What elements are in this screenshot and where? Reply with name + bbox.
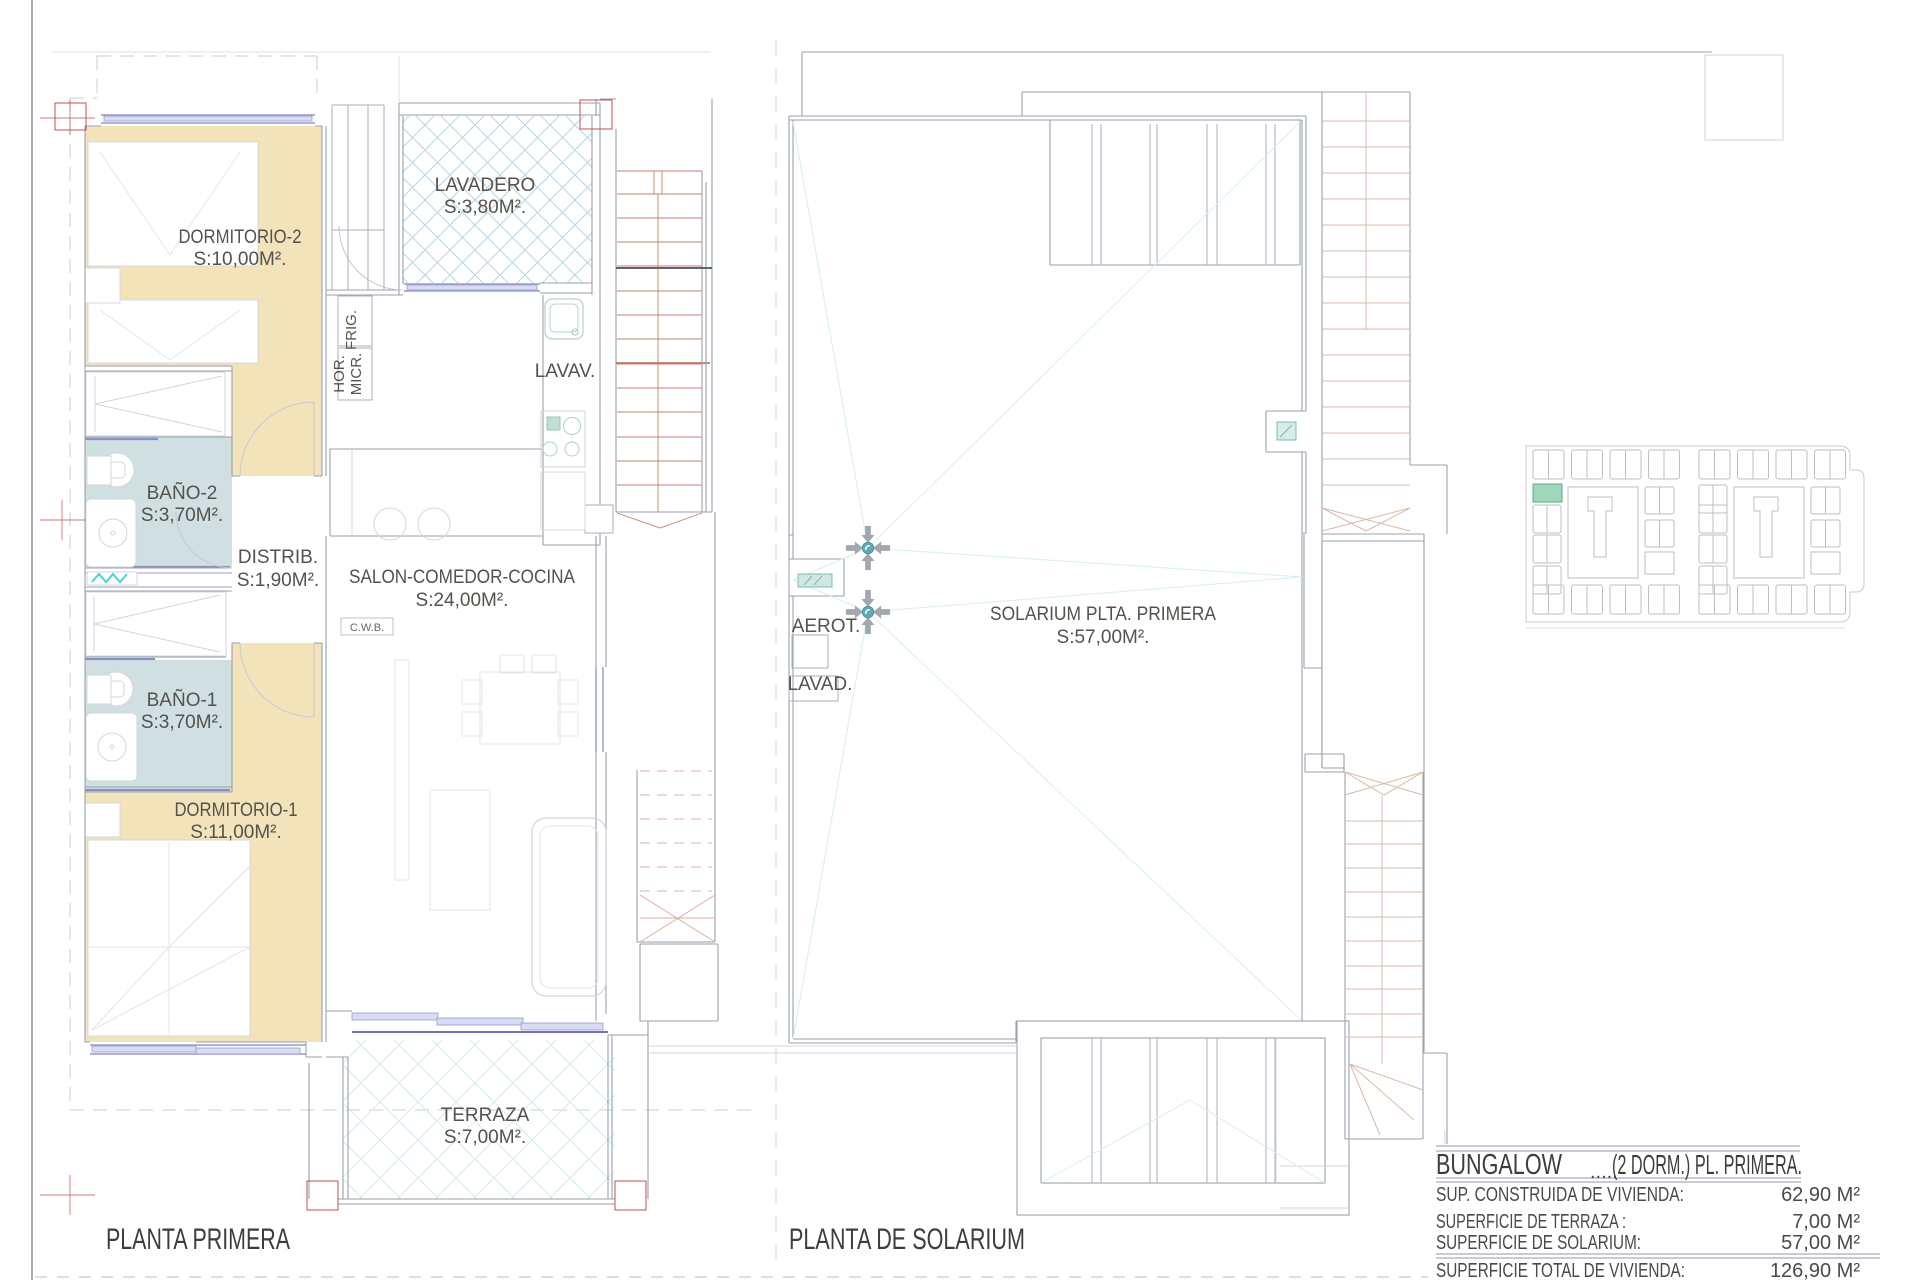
svg-text:PLANTA PRIMERA: PLANTA PRIMERA — [106, 1223, 290, 1256]
svg-text:DORMITORIO-1: DORMITORIO-1 — [175, 800, 298, 821]
svg-text:BAÑO-2: BAÑO-2 — [147, 482, 218, 504]
svg-text:7,00 M²: 7,00 M² — [1792, 1211, 1860, 1233]
svg-text:SUPERFICIE DE SOLARIUM:: SUPERFICIE DE SOLARIUM: — [1436, 1232, 1641, 1254]
svg-text:AEROT.: AEROT. — [792, 616, 861, 637]
svg-text:BUNGALOW: BUNGALOW — [1436, 1149, 1562, 1181]
svg-text:PLANTA DE SOLARIUM: PLANTA DE SOLARIUM — [789, 1223, 1025, 1256]
svg-text:S:10,00M².: S:10,00M². — [194, 249, 287, 270]
svg-text:S:3,70M².: S:3,70M². — [141, 505, 223, 526]
svg-text:SUPERFICIE DE TERRAZA :: SUPERFICIE DE TERRAZA : — [1436, 1211, 1626, 1233]
svg-text:S:7,00M².: S:7,00M². — [444, 1127, 526, 1148]
svg-text:S:3,70M².: S:3,70M². — [141, 712, 223, 733]
svg-text:FRIG.: FRIG. — [343, 310, 360, 350]
svg-text:SOLARIUM PLTA. PRIMERA: SOLARIUM PLTA. PRIMERA — [990, 604, 1216, 625]
svg-text:MICR.: MICR. — [348, 353, 365, 396]
svg-text:HOR.: HOR. — [331, 355, 348, 393]
svg-text:S:3,80M².: S:3,80M². — [444, 197, 526, 218]
svg-text:LAVAV.: LAVAV. — [535, 361, 596, 382]
svg-text:57,00 M²: 57,00 M² — [1781, 1232, 1860, 1254]
svg-text:S:57,00M².: S:57,00M². — [1057, 627, 1150, 648]
svg-text:LAVADERO: LAVADERO — [435, 175, 536, 196]
svg-text:BAÑO-1: BAÑO-1 — [147, 689, 218, 711]
svg-text:S:24,00M².: S:24,00M². — [416, 590, 509, 611]
svg-text:SALON-COMEDOR-COCINA: SALON-COMEDOR-COCINA — [349, 567, 575, 588]
svg-text:DORMITORIO-2: DORMITORIO-2 — [179, 227, 302, 248]
svg-text:TERRAZA: TERRAZA — [441, 1105, 530, 1126]
svg-text:LAVAD.: LAVAD. — [788, 674, 853, 695]
svg-text:(2 DORM.) PL. PRIMERA.: (2 DORM.) PL. PRIMERA. — [1612, 1149, 1802, 1180]
svg-text:SUPERFICIE TOTAL DE VIVIENDA:: SUPERFICIE TOTAL DE VIVIENDA: — [1436, 1260, 1685, 1280]
svg-text:62,90 M²: 62,90 M² — [1781, 1184, 1860, 1206]
svg-text:SUP. CONSTRUIDA DE VIVIENDA:: SUP. CONSTRUIDA DE VIVIENDA: — [1436, 1184, 1684, 1206]
svg-text:126,90 M²: 126,90 M² — [1770, 1260, 1860, 1280]
svg-text:DISTRIB.: DISTRIB. — [238, 547, 318, 568]
svg-text:C.W.B.: C.W.B. — [350, 622, 384, 634]
svg-text:S:1,90M².: S:1,90M². — [237, 570, 319, 591]
svg-text:S:11,00M².: S:11,00M². — [190, 822, 282, 843]
